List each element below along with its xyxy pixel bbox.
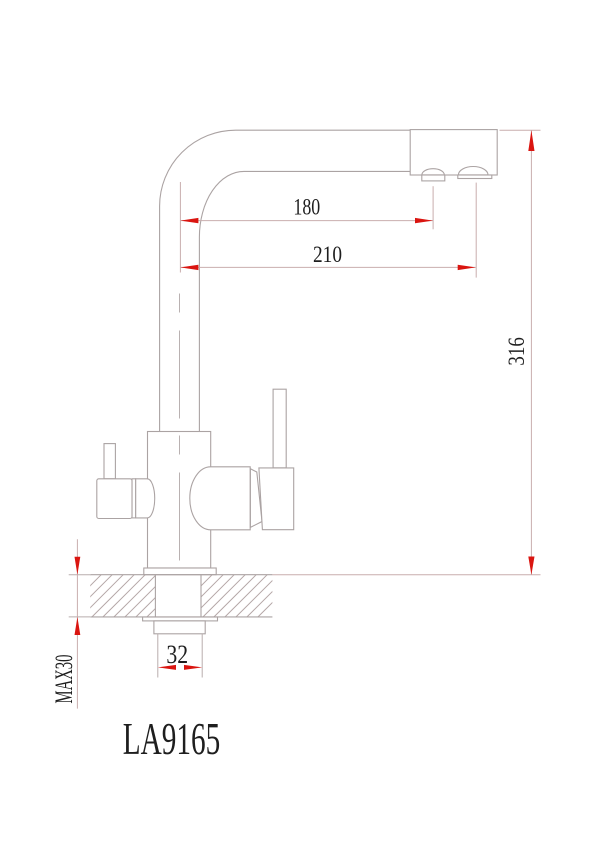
svg-text:180: 180 [293,194,320,219]
svg-text:210: 210 [313,242,342,267]
svg-text:LA9165: LA9165 [123,713,221,764]
svg-text:MAX30: MAX30 [49,655,78,704]
svg-text:32: 32 [166,640,188,669]
svg-text:316: 316 [504,337,529,365]
